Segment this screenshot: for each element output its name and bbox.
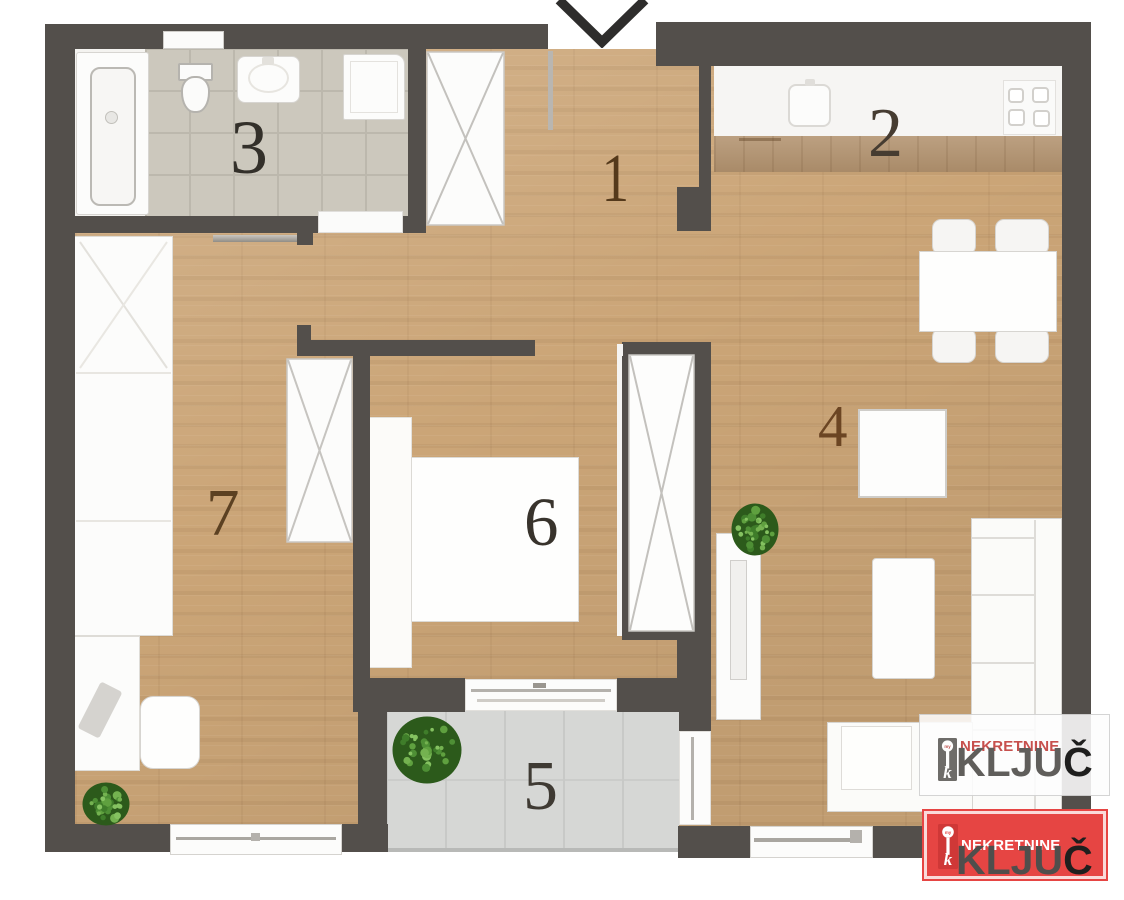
svg-text:my: my <box>945 830 952 835</box>
svg-text:k: k <box>944 850 953 869</box>
svg-text:my: my <box>944 744 951 749</box>
svg-text:k: k <box>943 763 952 781</box>
